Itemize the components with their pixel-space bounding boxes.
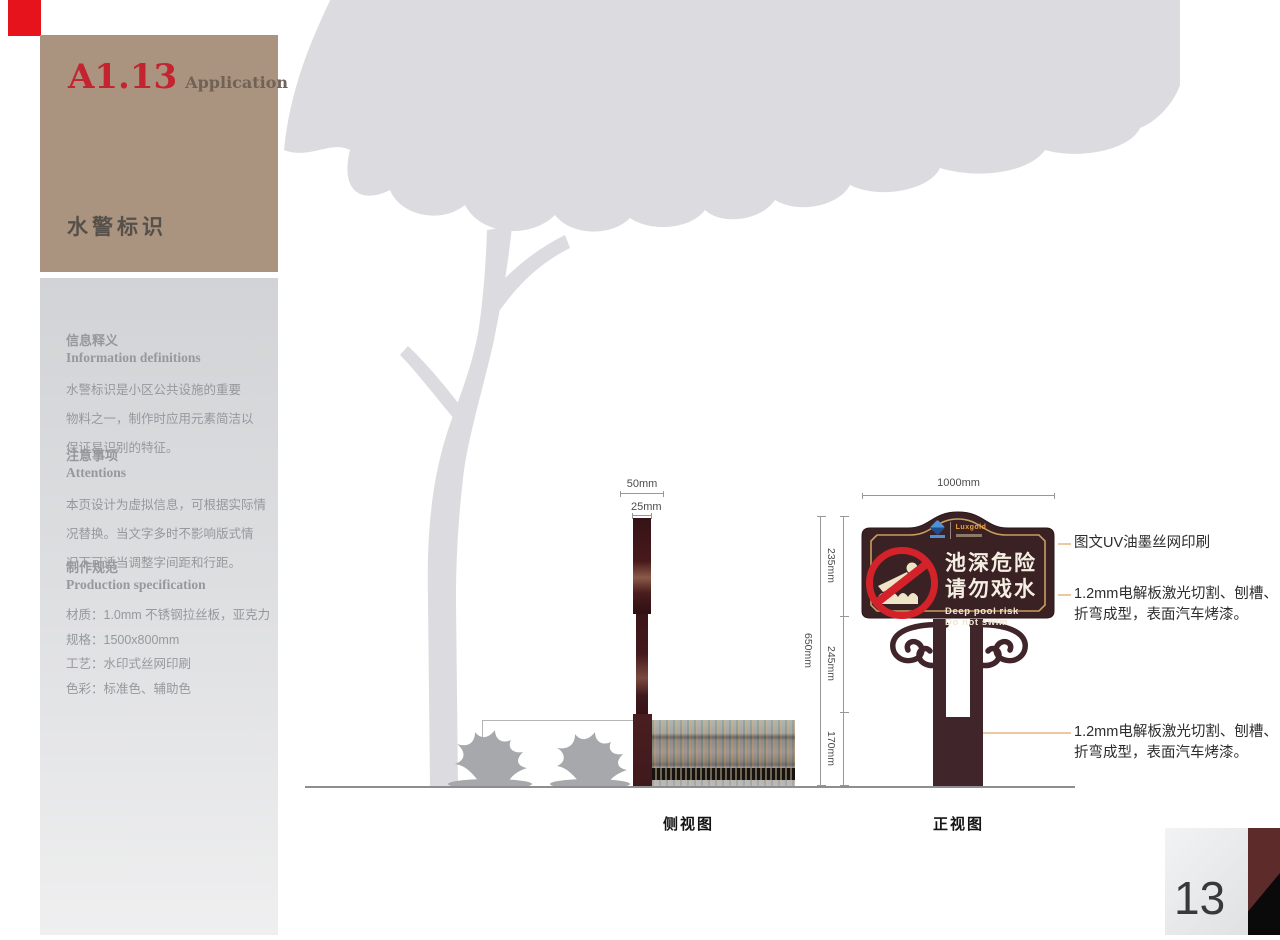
brand-wordmark-caption — [956, 534, 982, 537]
side-view-post-base — [633, 714, 652, 786]
section-heading-cn: 信息释义 — [66, 330, 266, 349]
side-view-post — [636, 614, 648, 714]
spec-line-size: 规格：1500x800mm — [66, 628, 266, 653]
sign-post-base — [933, 717, 983, 786]
plants-silhouette — [445, 726, 645, 788]
spec-line-process: 工艺：水印式丝网印刷 — [66, 652, 266, 677]
body-line: 况替换。当文字多时不影响版式情 — [66, 520, 266, 549]
side-view-label: 侧视图 — [663, 813, 714, 834]
annotation-print: 图文UV油墨丝网印刷 — [1074, 533, 1210, 554]
spec-line-material: 材质：1.0mm 不锈钢拉丝板，亚克力 — [66, 603, 266, 628]
spec-line-color: 色彩：标准色、辅助色 — [66, 677, 266, 702]
dim-label-245mm: 245mm — [825, 616, 837, 712]
leader-line-print — [1058, 543, 1071, 545]
sign-text-block: 池深危险 请勿戏水 Deep pool risk Do not swim — [945, 551, 1055, 628]
side-view-sign-edge — [633, 518, 651, 614]
front-view-label: 正视图 — [933, 813, 984, 834]
dim-line-650mm — [820, 516, 821, 786]
dim-line-25mm — [632, 515, 652, 516]
dim-line-50mm — [620, 493, 664, 494]
section-subtitle: Application — [185, 73, 288, 92]
page-title: 水警标识 — [67, 211, 167, 241]
side-view-hedge-texture — [652, 720, 795, 786]
section-code-text: A1.13 — [68, 57, 177, 97]
brand-mark-caption — [930, 535, 945, 538]
dim-line-1000mm — [862, 495, 1055, 496]
page-number: 13 — [1174, 871, 1225, 925]
annotation-base: 1.2mm电解板激光切割、刨槽、 折弯成型，表面汽车烤漆。 — [1074, 722, 1278, 764]
ground-line — [305, 786, 1075, 788]
no-swimming-icon — [866, 547, 938, 619]
section-heading-en: Attentions — [66, 465, 266, 481]
sign-warning-cn-line1: 池深危险 — [945, 551, 1055, 577]
design-manual-page: A1.13Application 水警标识 信息释义 Information d… — [0, 0, 1280, 940]
body-line: 物料之一，制作时应用元素简洁以 — [66, 405, 266, 434]
section-code: A1.13Application — [68, 57, 288, 97]
corner-accent-square — [8, 0, 41, 36]
logo-divider — [950, 522, 951, 539]
leader-line-panel — [1058, 594, 1071, 596]
info-section-definitions: 信息释义 Information definitions 水警标识是小区公共设施… — [66, 330, 266, 463]
sign-ornament-scrolls — [886, 621, 1032, 669]
page-number-block: 13 — [1165, 828, 1248, 935]
section-heading-en: Information definitions — [66, 350, 266, 366]
footer-accent-wedge — [1248, 828, 1280, 935]
dim-label-25mm: 25mm — [631, 501, 653, 513]
dim-label-170mm: 170mm — [825, 712, 837, 786]
tree-silhouette — [280, 0, 1180, 800]
body-line: 本页设计为虚拟信息，可根据实际情 — [66, 491, 266, 520]
section-heading-en: Production specification — [66, 577, 266, 593]
annotation-panel-line2: 折弯成型，表面汽车烤漆。 — [1074, 605, 1278, 626]
info-panel: 信息释义 Information definitions 水警标识是小区公共设施… — [40, 278, 278, 935]
sign-warning-cn-line2: 请勿戏水 — [945, 577, 1055, 603]
section-heading-cn: 注意事项 — [66, 445, 266, 464]
sign-warning-en-line1: Deep pool risk — [945, 606, 1055, 617]
leader-line-base — [983, 732, 1071, 734]
footer-accent-stripe — [1248, 828, 1280, 935]
section-heading-cn: 制作规范 — [66, 557, 266, 576]
dim-label-650mm: 650mm — [802, 516, 814, 786]
sign-post-right — [970, 619, 983, 717]
annotation-base-line2: 折弯成型，表面汽车烤漆。 — [1074, 743, 1278, 764]
brand-diamond-icon — [929, 520, 945, 536]
dim-label-235mm: 235mm — [825, 516, 837, 616]
sign-post-left — [933, 619, 946, 717]
annotation-panel: 1.2mm电解板激光切割、刨槽、 折弯成型，表面汽车烤漆。 — [1074, 584, 1278, 626]
brand-wordmark: Luxgold — [956, 524, 987, 532]
annotation-panel-line1: 1.2mm电解板激光切割、刨槽、 — [1074, 584, 1278, 605]
body-line: 水警标识是小区公共设施的重要 — [66, 376, 266, 405]
info-section-production: 制作规范 Production specification 材质：1.0mm 不… — [66, 557, 266, 701]
brand-logo: Luxgold — [918, 517, 998, 543]
dim-label-50mm: 50mm — [620, 478, 664, 490]
dim-line-segments — [843, 516, 844, 786]
section-header: A1.13Application 水警标识 — [40, 35, 278, 272]
dim-label-1000mm: 1000mm — [862, 477, 1055, 489]
sign-panel: Luxgold 池深危险 请勿戏水 Deep pool risk Do not … — [858, 509, 1058, 619]
annotation-base-line1: 1.2mm电解板激光切割、刨槽、 — [1074, 722, 1278, 743]
sign-warning-en-line2: Do not swim — [945, 617, 1055, 628]
